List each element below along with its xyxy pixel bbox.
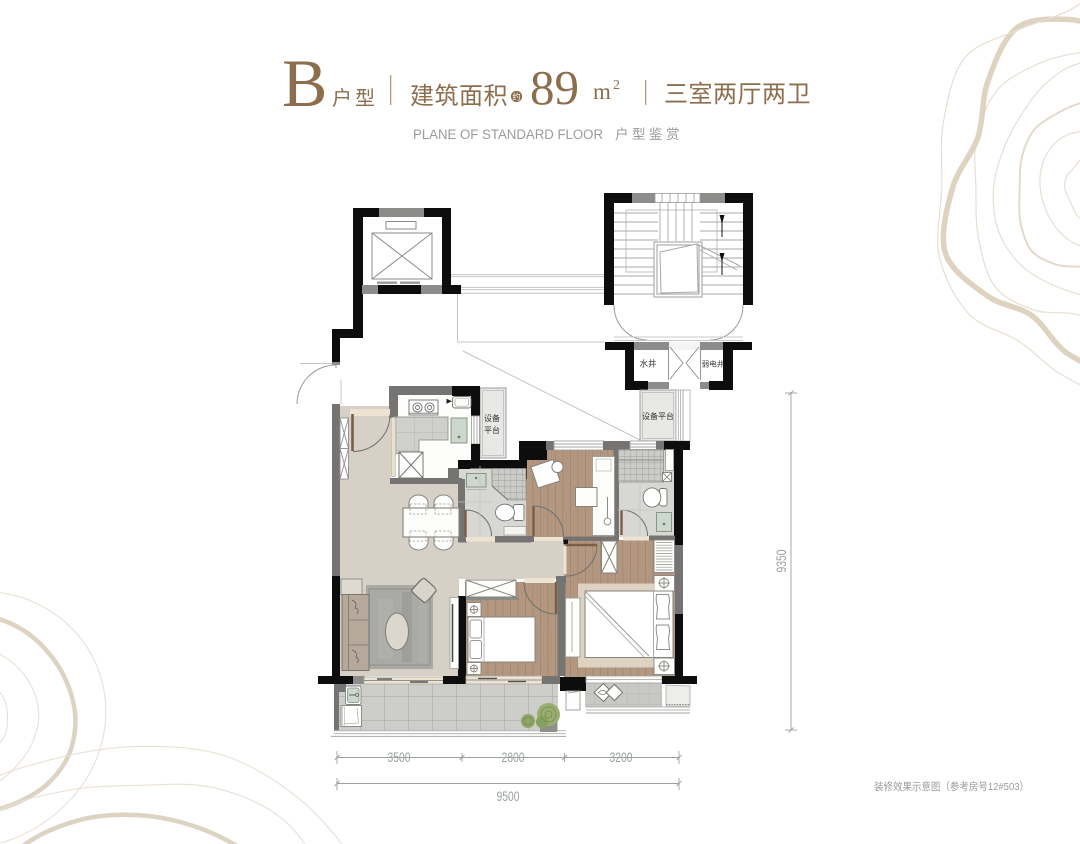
svg-text:建筑面积: 建筑面积 xyxy=(410,83,508,110)
svg-text:9350: 9350 xyxy=(774,550,789,573)
svg-text:89: 89 xyxy=(530,60,579,115)
svg-text:B: B xyxy=(282,45,327,121)
svg-text:弱电井: 弱电井 xyxy=(702,359,725,369)
svg-text:装修效果示意图（参考房号12#503）: 装修效果示意图（参考房号12#503） xyxy=(874,780,1029,793)
svg-text:设备: 设备 xyxy=(484,413,500,423)
svg-text:户型: 户型 xyxy=(332,87,378,110)
svg-text:3500: 3500 xyxy=(388,750,411,765)
svg-text:水井: 水井 xyxy=(639,359,656,369)
svg-text:约: 约 xyxy=(513,92,521,102)
svg-text:平台: 平台 xyxy=(484,425,500,435)
svg-text:3200: 3200 xyxy=(610,750,633,765)
svg-text:2800: 2800 xyxy=(502,750,525,765)
svg-text:PLANE OF STANDARD FLOOR: PLANE OF STANDARD FLOOR xyxy=(413,127,603,142)
svg-text:设备平台: 设备平台 xyxy=(642,411,674,421)
svg-text:2: 2 xyxy=(613,78,620,93)
svg-text:9500: 9500 xyxy=(497,789,520,804)
svg-text:户型鉴赏: 户型鉴赏 xyxy=(615,126,683,142)
svg-text:m: m xyxy=(593,79,611,104)
svg-text:三室两厅两卫: 三室两厅两卫 xyxy=(664,81,811,108)
